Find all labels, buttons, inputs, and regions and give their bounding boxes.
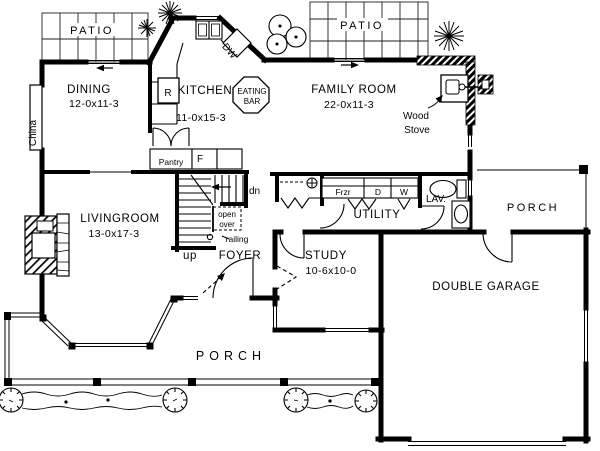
kitchen-sink-icon bbox=[196, 21, 222, 39]
study-dims: 10-6x10-0 bbox=[306, 265, 357, 277]
lav-sink-icon bbox=[452, 201, 470, 228]
living-room-dims: 13-0x17-3 bbox=[89, 228, 140, 240]
open-over-label-1: open bbox=[218, 210, 236, 219]
kitchen-label: KITCHEN bbox=[178, 85, 233, 97]
dryer-label: D bbox=[375, 187, 381, 197]
chimney-flue bbox=[482, 80, 489, 89]
patio-left-label: PATIO bbox=[70, 25, 114, 37]
dn-label: dn bbox=[249, 186, 260, 197]
eating-bar-label-2: BAR bbox=[244, 97, 261, 106]
eating-bar-label-1: EATING bbox=[237, 87, 266, 96]
wood-stove-label-1: Wood bbox=[403, 111, 429, 122]
porch-right-corner-post bbox=[579, 165, 588, 174]
bifold-door-marks bbox=[281, 198, 410, 209]
dining-label: DINING bbox=[67, 84, 111, 96]
family-room-dims: 22-0x11-3 bbox=[324, 99, 374, 111]
garage-label: DOUBLE GARAGE bbox=[432, 281, 540, 293]
porch-right-outline bbox=[477, 170, 586, 230]
bush-icons bbox=[0, 388, 377, 412]
up-label: up bbox=[183, 250, 197, 262]
floor-plan: PATIO PATIO DINING 12-0x11-3 China KITCH… bbox=[0, 0, 600, 451]
porch-bottom-railing bbox=[5, 313, 378, 386]
stairs-dn-arrow-icon bbox=[211, 184, 231, 190]
washer-label: W bbox=[400, 187, 408, 197]
floor-plan-drawing: PATIO PATIO DINING 12-0x11-3 China KITCH… bbox=[0, 0, 600, 451]
labels: PATIO PATIO DINING 12-0x11-3 China KITCH… bbox=[28, 20, 559, 363]
stairs bbox=[178, 175, 243, 242]
porch-bottom-label: PORCH bbox=[196, 349, 266, 363]
patio-right-label: PATIO bbox=[340, 20, 384, 32]
lav-label: LAV. bbox=[426, 194, 446, 205]
range-label: R bbox=[164, 88, 171, 99]
kitchen-dims: 11-0x15-3 bbox=[176, 112, 226, 124]
fridge-label: F bbox=[197, 154, 203, 165]
bay-window bbox=[41, 299, 174, 347]
china-label: China bbox=[28, 120, 39, 147]
open-over-label-2: over bbox=[219, 220, 235, 229]
railing-label: railing bbox=[226, 234, 249, 244]
utility-label: UTILITY bbox=[353, 209, 400, 221]
porch-right-label: PORCH bbox=[507, 202, 559, 214]
closet-shelf-and-light bbox=[280, 178, 317, 188]
pantry-label: Pantry bbox=[159, 157, 184, 167]
bay-window-posts bbox=[40, 296, 178, 350]
family-room-label: FAMILY ROOM bbox=[311, 84, 396, 96]
porch-posts bbox=[4, 312, 379, 386]
study-label: STUDY bbox=[305, 250, 347, 262]
foyer-label: FOYER bbox=[219, 250, 262, 262]
frzr-label: Frzr bbox=[335, 187, 350, 197]
dining-dims: 12-0x11-3 bbox=[69, 98, 119, 110]
patio-left-grid bbox=[42, 13, 148, 62]
tree-circles-icon bbox=[267, 15, 306, 54]
fireplace-icon bbox=[25, 214, 69, 276]
living-room-label: LIVINGROOM bbox=[80, 213, 159, 225]
wood-stove-label-2: Stove bbox=[404, 125, 430, 136]
